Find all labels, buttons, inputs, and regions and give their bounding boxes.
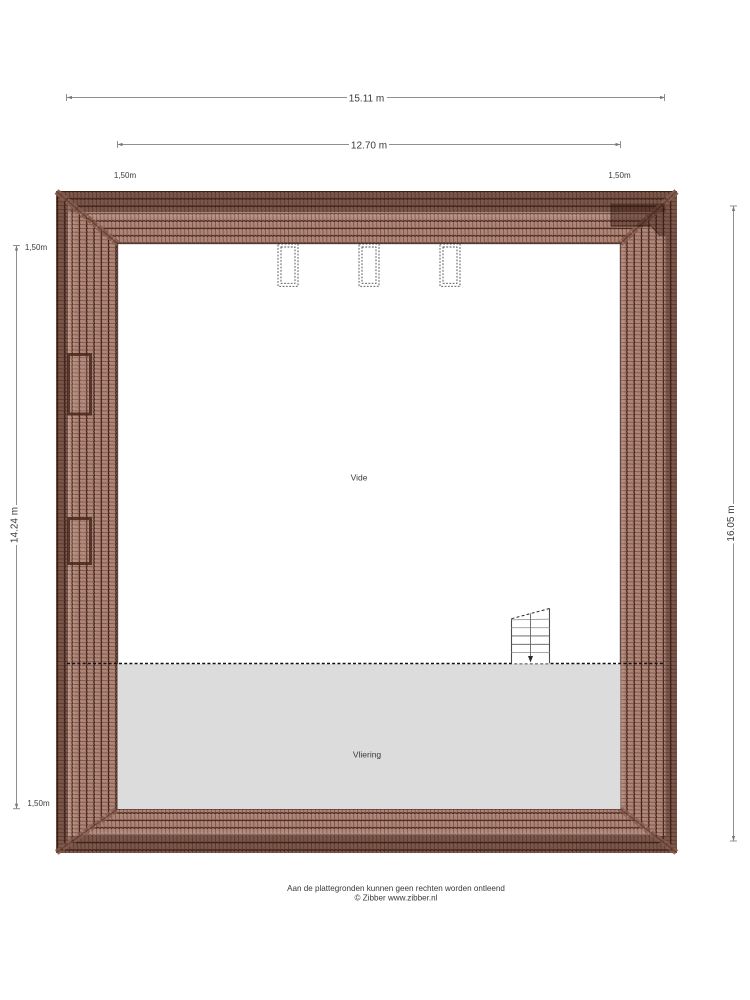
svg-text:1,50m: 1,50m bbox=[114, 171, 137, 180]
svg-text:1,50m: 1,50m bbox=[27, 799, 50, 808]
svg-text:Vliering: Vliering bbox=[353, 749, 382, 759]
svg-text:14.24 m: 14.24 m bbox=[10, 507, 21, 543]
svg-text:15.11 m: 15.11 m bbox=[349, 93, 384, 104]
svg-text:Vide: Vide bbox=[351, 473, 368, 483]
svg-text:12.70 m: 12.70 m bbox=[351, 140, 387, 151]
svg-text:1,50m: 1,50m bbox=[608, 171, 631, 180]
svg-text:1,50m: 1,50m bbox=[25, 243, 48, 252]
svg-text:16.05 m: 16.05 m bbox=[726, 505, 737, 541]
svg-text:Aan de plattegronden kunnen ge: Aan de plattegronden kunnen geen rechten… bbox=[287, 884, 505, 893]
svg-text:© Zibber www.zibber.nl: © Zibber www.zibber.nl bbox=[355, 893, 438, 902]
